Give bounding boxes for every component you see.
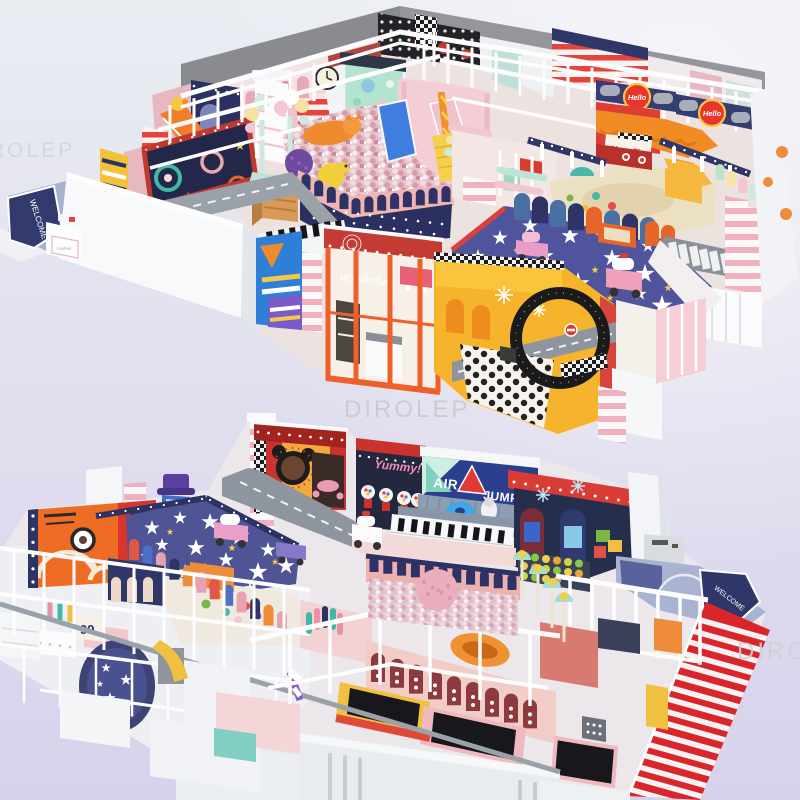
svg-text:DIROLEP: DIROLEP xyxy=(0,139,75,162)
svg-text:cashier: cashier xyxy=(57,246,72,251)
svg-text:DIROLEP: DIROLEP xyxy=(737,638,800,665)
svg-text:DIROLEP: DIROLEP xyxy=(344,396,470,423)
svg-text:Hello: Hello xyxy=(703,109,722,118)
svg-text:Hello: Hello xyxy=(628,93,647,102)
svg-text:AIR: AIR xyxy=(433,475,459,493)
